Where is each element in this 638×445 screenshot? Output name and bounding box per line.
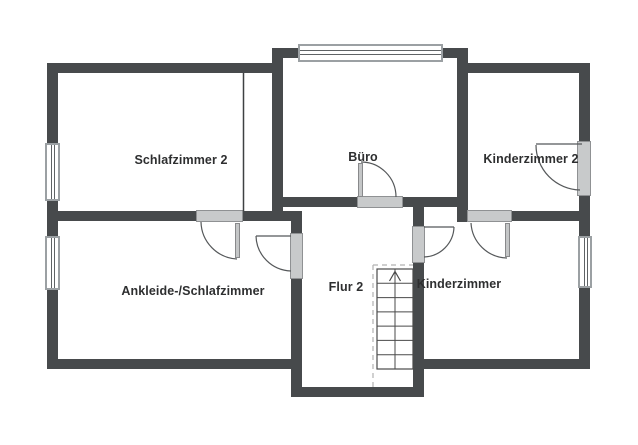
door-opening-schlafzimmer2-ankleide — [196, 210, 243, 222]
wall-middle-right-segment — [511, 211, 590, 221]
wall-flur-right-upper — [413, 207, 424, 227]
window-pane-line — [587, 238, 588, 286]
door-arc-ankleide-flur — [256, 236, 291, 271]
door-arc-flur-kinderzimmer — [424, 227, 454, 257]
stair-up-arrow — [390, 272, 401, 282]
room-label-flur-2: Flur 2 — [329, 280, 364, 294]
wall-buero-right — [457, 48, 468, 222]
door-leaf-kinderzimmer2-kinderzimmer — [505, 223, 510, 257]
door-opening-buero — [357, 196, 403, 208]
window-pane-line — [584, 238, 585, 286]
wall-bottom-right-section — [413, 359, 590, 369]
floor-plan: Schlafzimmer 2 Büro Kinderzimmer 2 Ankle… — [0, 0, 638, 445]
staircase — [373, 265, 413, 387]
room-label-kinderzimmer-2: Kinderzimmer 2 — [483, 152, 578, 166]
window-pane-line — [300, 50, 441, 51]
stair-step-lines — [377, 283, 413, 354]
room-label-ankleide-schlafzimmer: Ankleide-/Schlafzimmer — [121, 284, 264, 298]
window-ankleide — [45, 236, 60, 290]
window-buero — [298, 44, 443, 62]
window-pane-line — [54, 238, 55, 288]
door-leaf-buero — [358, 163, 363, 197]
window-pane-line — [54, 145, 55, 199]
wall-buero-bottom-right-segment — [402, 197, 458, 207]
door-arc-schlafzimmer2-ankleide — [201, 222, 237, 259]
window-pane-line — [300, 54, 441, 55]
window-pane-line — [51, 145, 52, 199]
wall-top-right-section — [457, 63, 590, 73]
room-label-schlafzimmer-2: Schlafzimmer 2 — [134, 153, 227, 167]
door-arc-kinderzimmer2-kinderzimmer — [471, 223, 507, 258]
wall-top-left-section — [47, 63, 283, 73]
window-schlafzimmer2 — [45, 143, 60, 201]
wall-exterior-left — [47, 63, 58, 369]
door-opening-flur-kinderzimmer — [412, 226, 425, 263]
window-kinderzimmer — [578, 236, 592, 288]
room-label-kinderzimmer: Kinderzimmer — [417, 277, 502, 291]
wall-flur-left-lower — [291, 278, 302, 397]
wall-middle-left-segment-a — [58, 211, 197, 221]
door-opening-ankleide-flur — [290, 233, 303, 279]
wall-buero-bottom-left-segment — [283, 197, 358, 207]
wall-flur-protrusion-bottom — [291, 387, 424, 397]
room-label-buero: Büro — [348, 150, 378, 164]
door-opening-kinderzimmer2-kinderzimmer — [467, 210, 512, 222]
door-arc-buero — [361, 162, 396, 197]
wall-buero-left — [272, 48, 283, 221]
wall-middle-left-segment-b — [242, 211, 302, 221]
door-leaf-kinderzimmer2-right — [577, 141, 591, 196]
wall-bottom-left-section — [47, 359, 302, 369]
door-leaf-schlafzimmer2-ankleide — [235, 223, 240, 258]
stair-outline — [377, 269, 413, 369]
window-pane-line — [51, 238, 52, 288]
